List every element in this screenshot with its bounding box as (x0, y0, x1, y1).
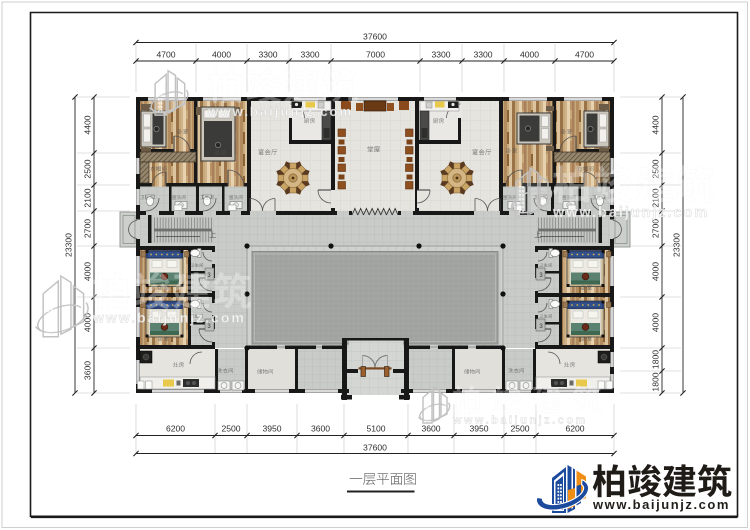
svg-text:4000: 4000 (520, 50, 539, 60)
svg-text:23300: 23300 (672, 233, 682, 257)
svg-text:3950: 3950 (262, 424, 281, 434)
svg-text:5100: 5100 (366, 424, 385, 434)
svg-text:www.baijunjz.com: www.baijunjz.com (452, 415, 588, 427)
svg-text:2500: 2500 (83, 159, 93, 178)
svg-text:www.baijunjz.com: www.baijunjz.com (552, 205, 709, 221)
svg-text:4400: 4400 (651, 115, 661, 134)
svg-text:www.baijunjz.com: www.baijunjz.com (592, 497, 730, 512)
svg-text:3300: 3300 (258, 50, 277, 60)
svg-text:4700: 4700 (575, 50, 594, 60)
svg-text:4700: 4700 (156, 50, 175, 60)
svg-text:37600: 37600 (363, 443, 387, 453)
svg-text:7000: 7000 (366, 50, 385, 60)
svg-text:1800: 1800 (651, 372, 661, 391)
svg-text:37600: 37600 (363, 32, 387, 42)
svg-text:3300: 3300 (473, 50, 492, 60)
svg-text:www.baijunjz.com: www.baijunjz.com (207, 104, 353, 119)
svg-text:2500: 2500 (221, 424, 240, 434)
svg-text:4400: 4400 (83, 115, 93, 134)
svg-text:1800: 1800 (651, 350, 661, 369)
svg-text:2100: 2100 (83, 188, 93, 207)
svg-text:23300: 23300 (64, 233, 74, 257)
svg-text:6200: 6200 (166, 424, 185, 434)
svg-text:3300: 3300 (431, 50, 450, 60)
svg-text:4000: 4000 (212, 50, 231, 60)
svg-text:www.baijunjz.com: www.baijunjz.com (92, 309, 246, 325)
svg-text:3600: 3600 (83, 361, 93, 380)
svg-text:2700: 2700 (83, 219, 93, 238)
svg-text:4000: 4000 (651, 262, 661, 281)
svg-text:4000: 4000 (83, 262, 93, 281)
svg-text:3300: 3300 (300, 50, 319, 60)
svg-text:3600: 3600 (311, 424, 330, 434)
svg-text:2700: 2700 (651, 219, 661, 238)
svg-text:3600: 3600 (421, 424, 440, 434)
svg-text:4000: 4000 (651, 313, 661, 332)
